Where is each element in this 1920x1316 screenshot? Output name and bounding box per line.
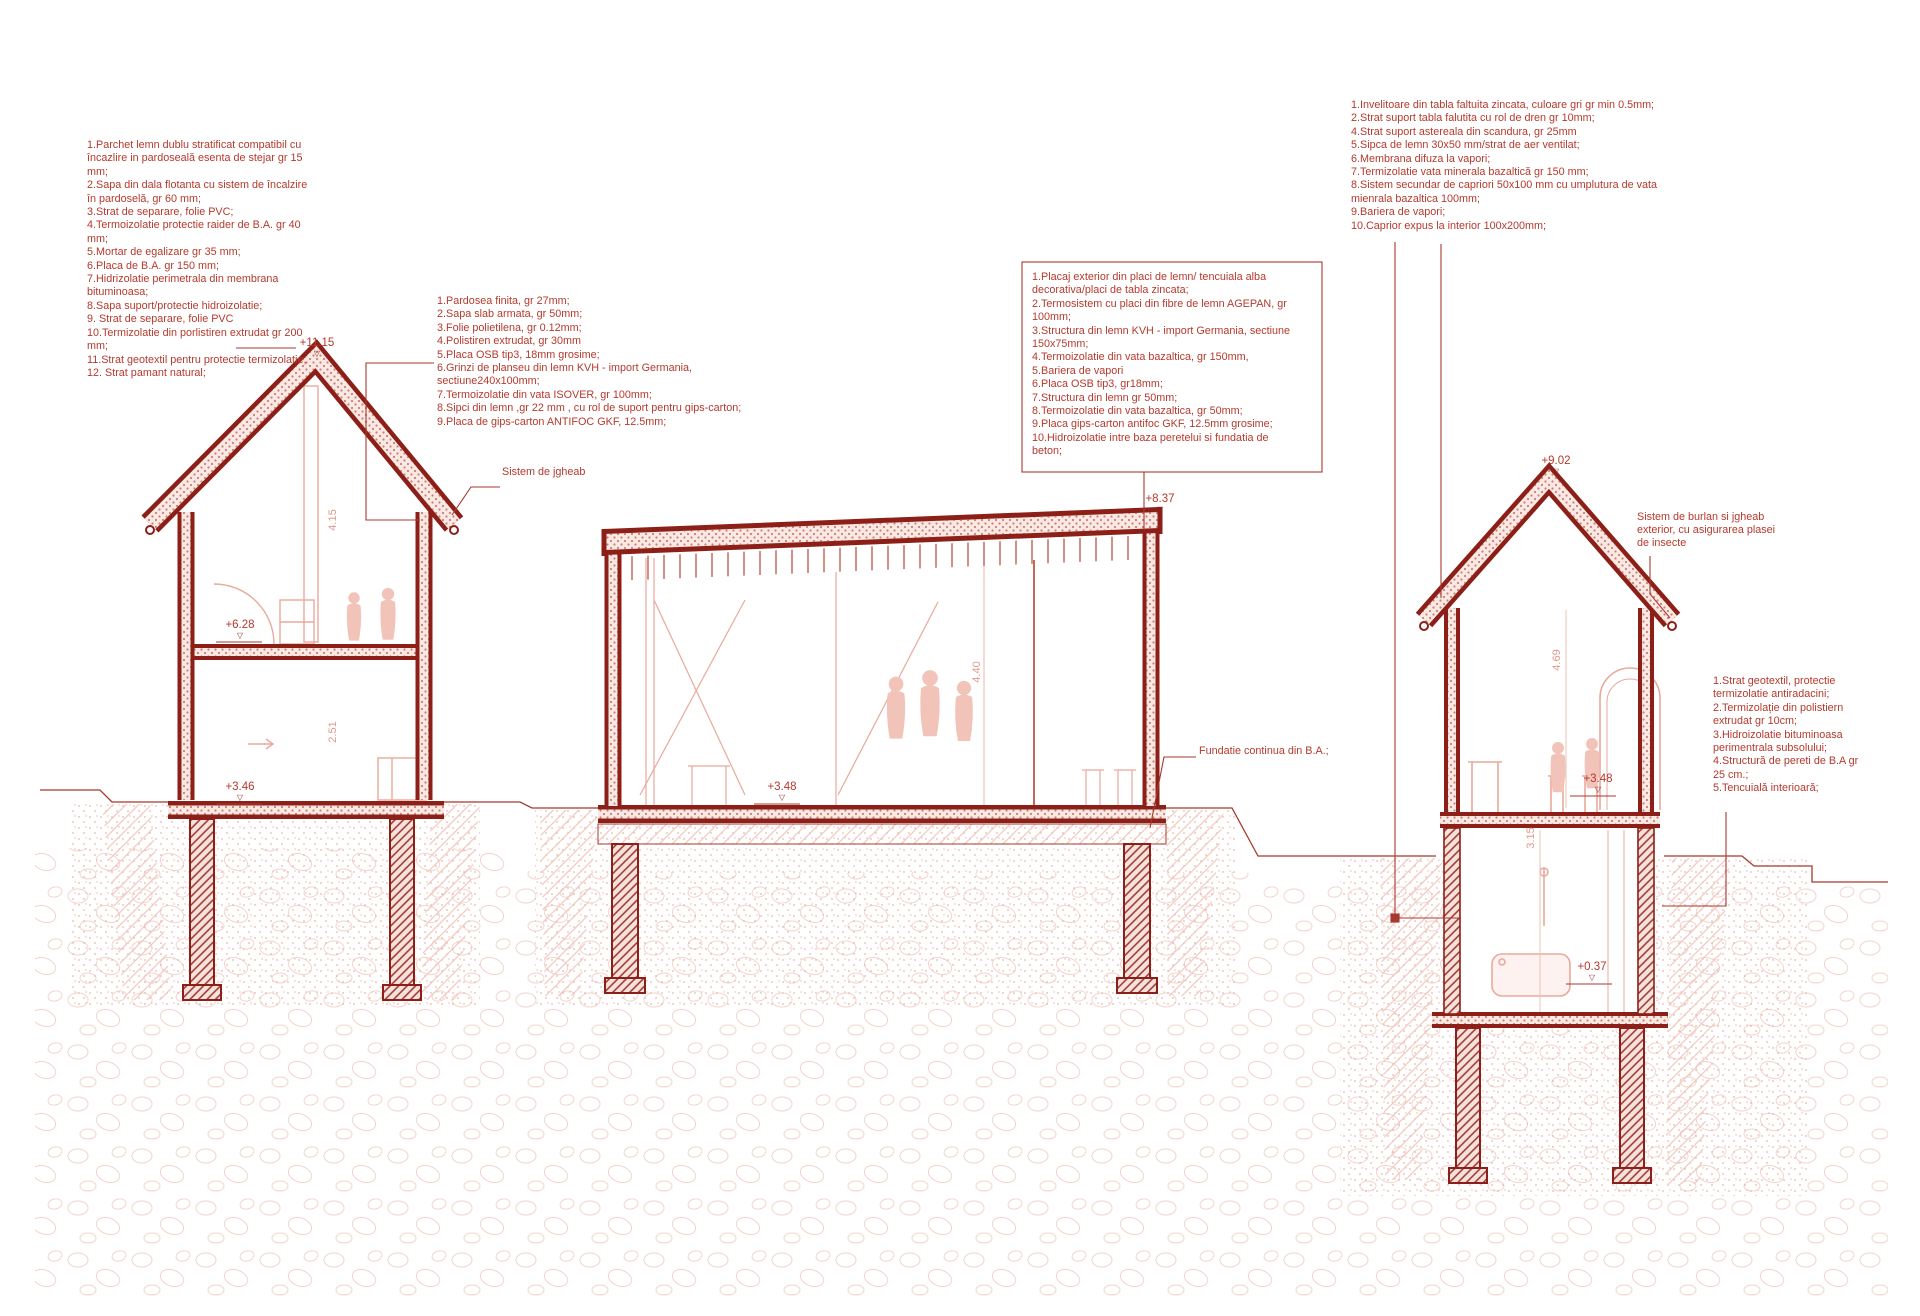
elevation-middle-floor: +3.48 ▽ [767,782,796,801]
level-triangle-icon: ▽ [314,350,320,357]
annotation-roof-buildup: 1.Invelitoare din tabla faltuita zincata… [1351,99,1683,233]
level-triangle-icon: ▽ [237,794,243,801]
label-downspout-system: Sistem de burlan si jgheab exterior, cu … [1637,511,1789,551]
elevation-value: +3.48 [1583,774,1612,785]
level-triangle-icon: ▽ [237,632,243,639]
elevation-value: +8.37 [1145,494,1174,505]
dimension-right-upper: 4.69 [1551,639,1563,681]
elevation-left-ridge: +11.15 ▽ [300,338,335,357]
dimension-left-upper: 4.15 [327,499,339,541]
elevation-value: +6.28 [225,620,254,631]
elevation-value: +0.37 [1577,962,1606,973]
label-gutter-system: Sistem de jgheab [502,466,585,479]
annotation-intermediate-floor-buildup: 1.Pardosea finita, gr 27mm; 2.Sapa slab … [437,295,769,429]
annotation-exterior-wall-buildup: 1.Placaj exterior din placi de lemn/ ten… [1032,271,1300,459]
level-triangle-icon: ▽ [1157,506,1163,513]
dimension-middle-hall: 4.40 [971,651,983,693]
dimension-right-basement: 3.15 [1525,817,1537,859]
elevation-value: +3.46 [225,782,254,793]
elevation-value: +11.15 [300,338,335,349]
level-triangle-icon: ▽ [1595,786,1601,793]
elevation-value: +9.02 [1541,456,1570,467]
annotation-basement-wall-buildup: 1.Strat geotextil, protectie termizolati… [1713,675,1871,796]
elevation-right-basement: +0.37 ▽ [1577,962,1606,981]
level-triangle-icon: ▽ [1589,974,1595,981]
level-triangle-icon: ▽ [779,794,785,801]
elevation-left-ground: +3.46 ▽ [225,782,254,801]
elevation-left-mid-floor: +6.28 ▽ [225,620,254,639]
elevation-middle-roof: +8.37 ▽ [1145,494,1174,513]
elevation-right-floor: +3.48 ▽ [1583,774,1612,793]
level-triangle-icon: ▽ [1553,468,1559,475]
dimension-left-lower: 2.51 [327,711,339,753]
annotation-ground-floor-buildup: 1.Parchet lemn dublu stratificat compati… [87,139,309,380]
elevation-right-ridge: +9.02 ▽ [1541,456,1570,475]
architectural-section-sheet: 1.Parchet lemn dublu stratificat compati… [0,0,1920,1316]
label-continuous-foundation: Fundatie continua din B.A.; [1199,745,1329,758]
elevation-value: +3.48 [767,782,796,793]
